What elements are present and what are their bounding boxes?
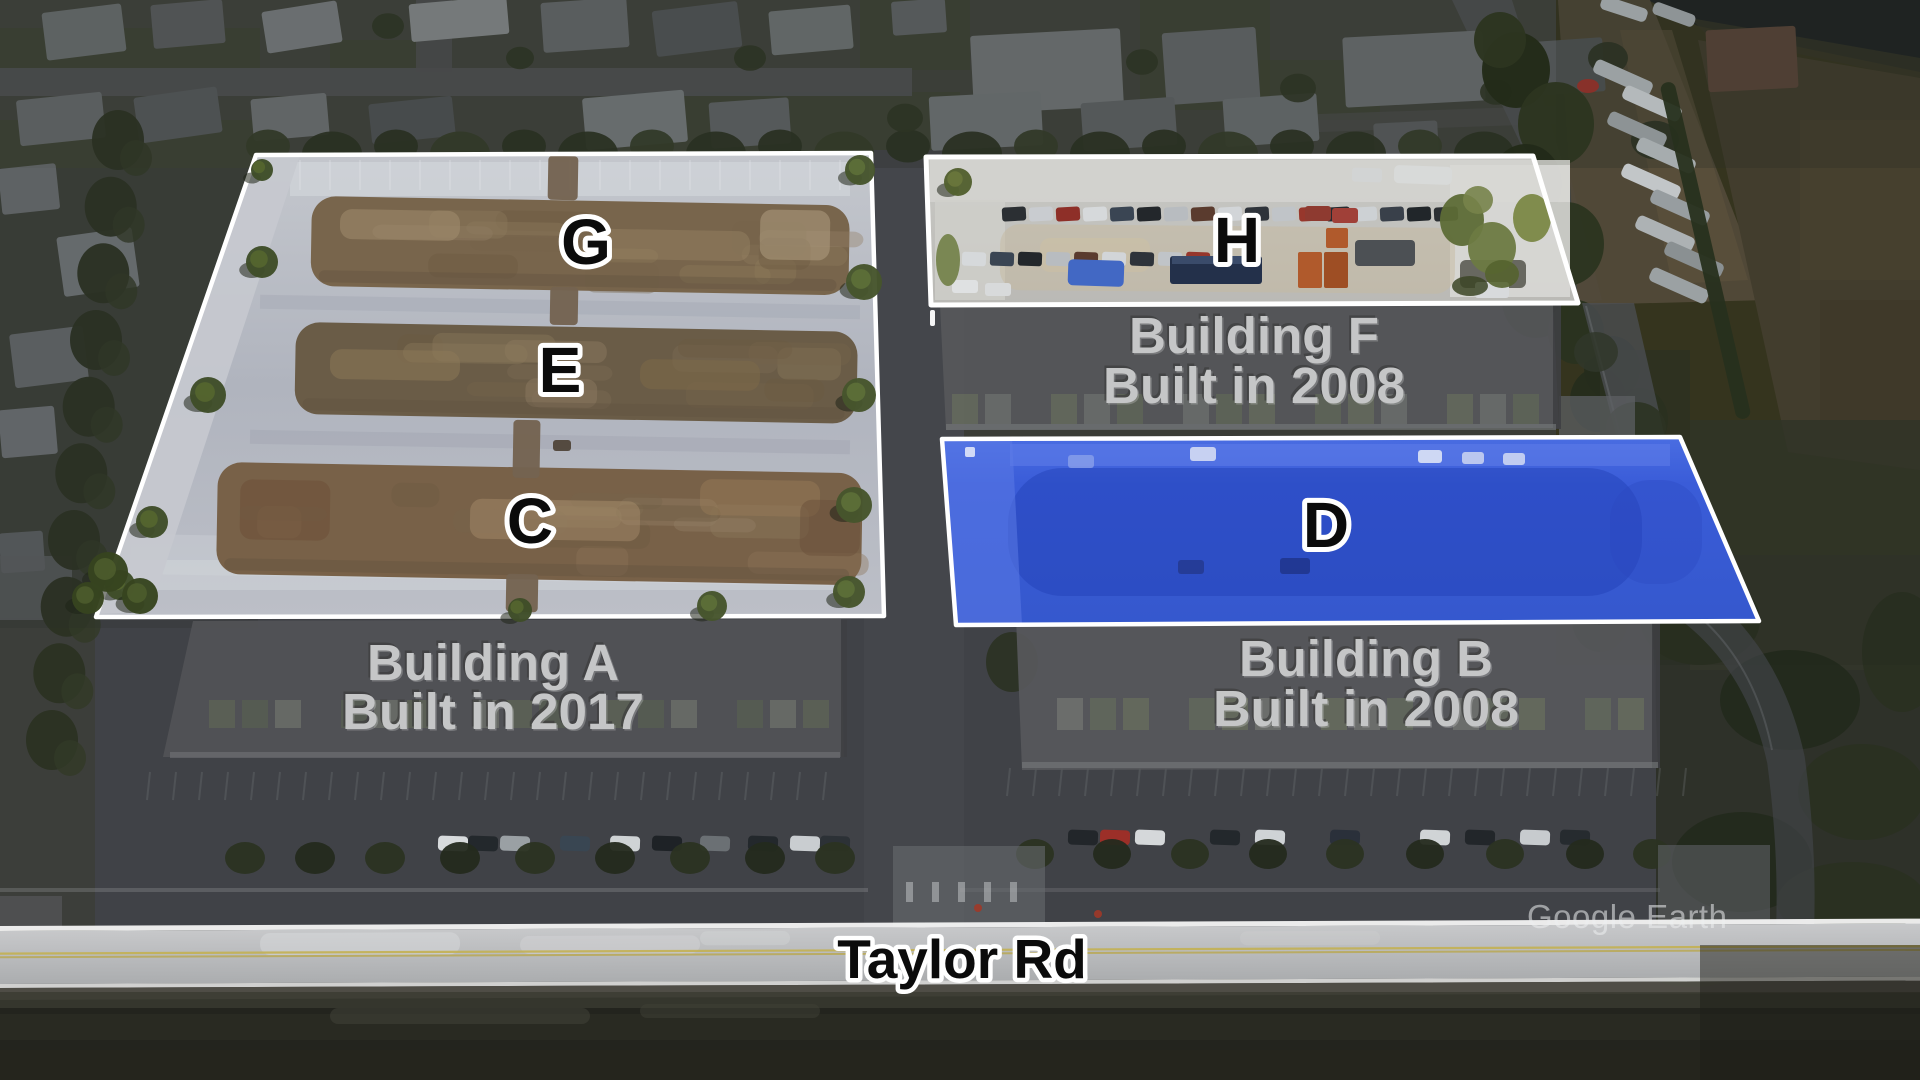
svg-text:C: C [507, 485, 553, 557]
svg-text:H: H [1214, 204, 1260, 276]
svg-text:Built in 2008: Built in 2008 [1213, 680, 1519, 737]
svg-text:Taylor Rd: Taylor Rd [837, 928, 1087, 990]
svg-text:E: E [539, 334, 582, 406]
svg-text:Built in 2008: Built in 2008 [1103, 357, 1405, 414]
svg-text:G: G [561, 206, 611, 278]
svg-text:D: D [1303, 489, 1349, 561]
svg-text:Google Earth: Google Earth [1527, 898, 1727, 935]
svg-text:Built in 2017: Built in 2017 [342, 683, 644, 740]
